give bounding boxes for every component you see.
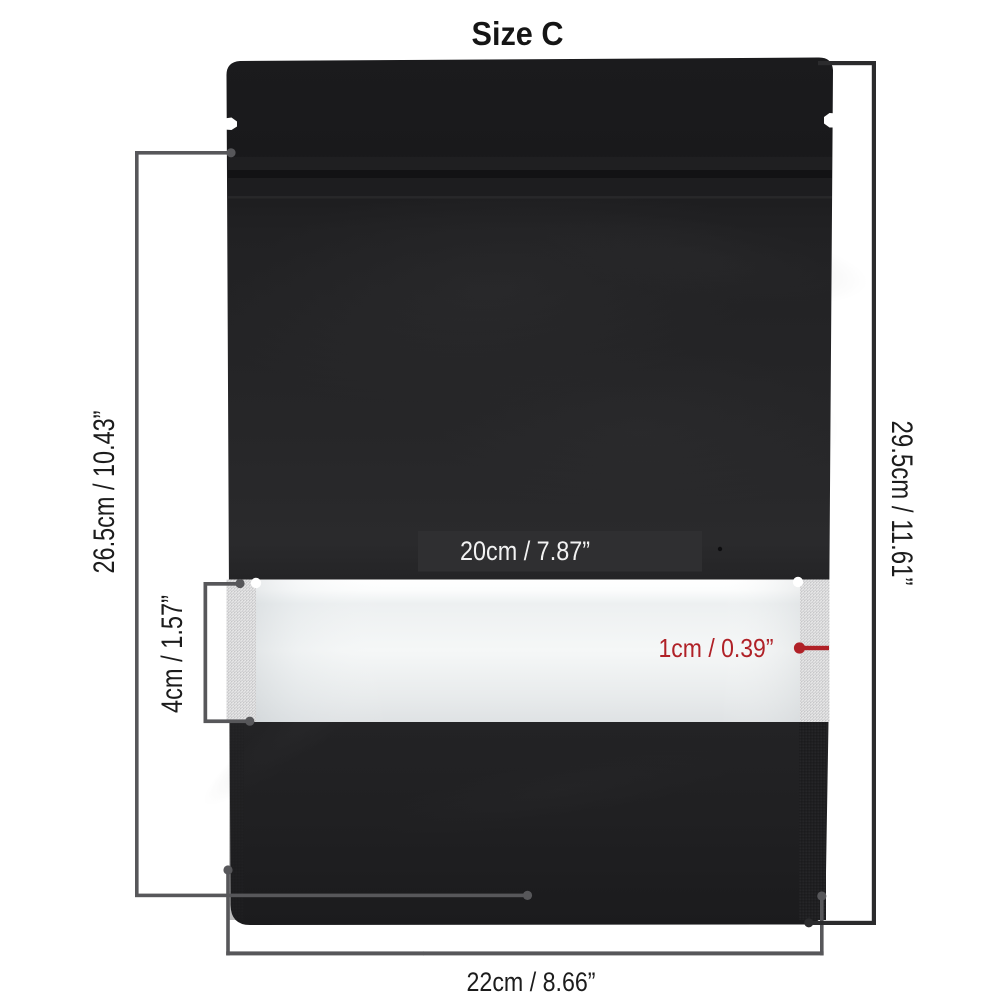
svg-text:1cm / 0.39”: 1cm / 0.39” [659,633,774,663]
svg-text:29.5cm / 11.61”: 29.5cm / 11.61” [885,421,918,586]
svg-text:22cm / 8.66”: 22cm / 8.66” [467,967,596,997]
svg-text:4cm / 1.57”: 4cm / 1.57” [156,595,189,713]
svg-text:26.5cm / 10.43”: 26.5cm / 10.43” [88,411,121,574]
svg-text:20cm / 7.87”: 20cm / 7.87” [460,536,590,566]
svg-text:Size C: Size C [472,15,564,52]
